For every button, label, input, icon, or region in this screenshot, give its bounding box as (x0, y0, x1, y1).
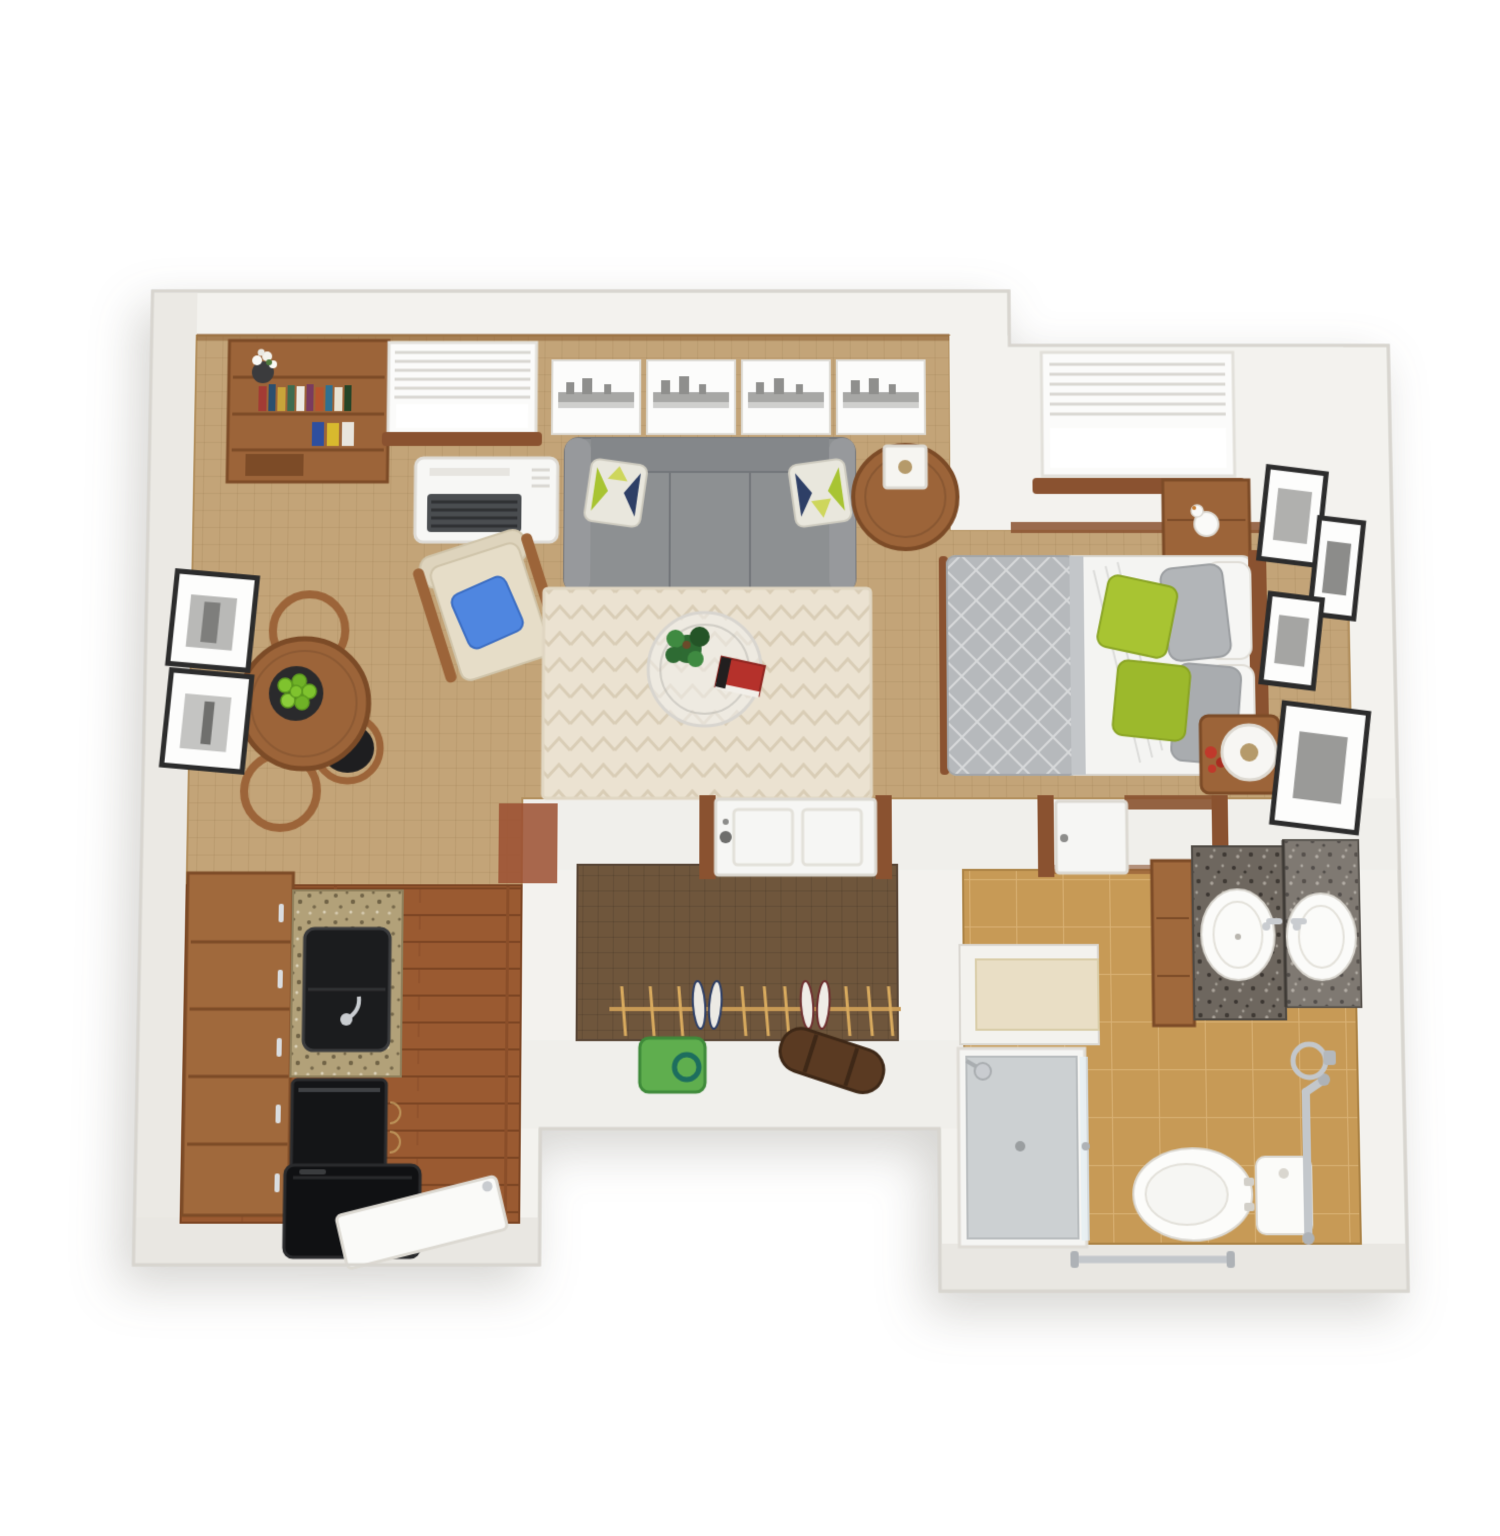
framed-print-6 (1272, 703, 1369, 833)
art-panel-3 (742, 360, 830, 434)
living-window (382, 343, 543, 446)
vanity (1151, 840, 1361, 1025)
cabinet-run (182, 873, 294, 1215)
bedroom-window (1031, 352, 1245, 493)
framed-print-2 (162, 670, 252, 772)
counter-and-sink (290, 890, 402, 1076)
wall-air-conditioner (415, 458, 558, 542)
shower (958, 1048, 1091, 1246)
window-sill (382, 432, 542, 446)
half-wall-niche (959, 945, 1098, 1044)
green-tote-bag (640, 1038, 705, 1092)
corner-lamp-table (1200, 716, 1280, 793)
quilt-fold (1069, 556, 1085, 775)
drum-lamp (1222, 725, 1277, 780)
sofa-pillow-left (583, 458, 647, 527)
spine-trim-left (498, 803, 557, 883)
green-pillow-1 (1096, 574, 1179, 660)
bookshelf (227, 341, 389, 482)
framed-print-5 (1261, 594, 1322, 689)
art-panel-4 (837, 360, 925, 434)
side-table (853, 445, 958, 549)
cube-lamp (884, 446, 926, 488)
floor-plan-stage (0, 0, 1500, 1536)
shelf-binders (312, 422, 354, 446)
gray-quilt (947, 556, 1078, 775)
floor-plan-perspective-wrap (0, 7, 1500, 1536)
west-wall-frames (161, 571, 257, 772)
bath-south-band (940, 1244, 1408, 1291)
door-knob (720, 831, 732, 843)
vanity-cabinet (1152, 861, 1195, 1026)
under-counter-appliance (291, 1080, 401, 1176)
green-pillow-2 (1112, 659, 1191, 741)
framed-print-1 (168, 571, 258, 671)
entry-door (699, 795, 892, 879)
nightstand (1163, 480, 1250, 562)
shelf-box (245, 454, 303, 476)
shower-drain (1015, 1141, 1025, 1151)
sofa-pillow-right (788, 458, 852, 527)
art-panel-2 (647, 360, 735, 434)
toilet (1133, 1148, 1313, 1240)
sofa (564, 438, 856, 592)
closet-south-band (520, 1040, 965, 1128)
floor-plan-svg (0, 7, 1500, 1536)
art-panel-1 (552, 360, 640, 434)
